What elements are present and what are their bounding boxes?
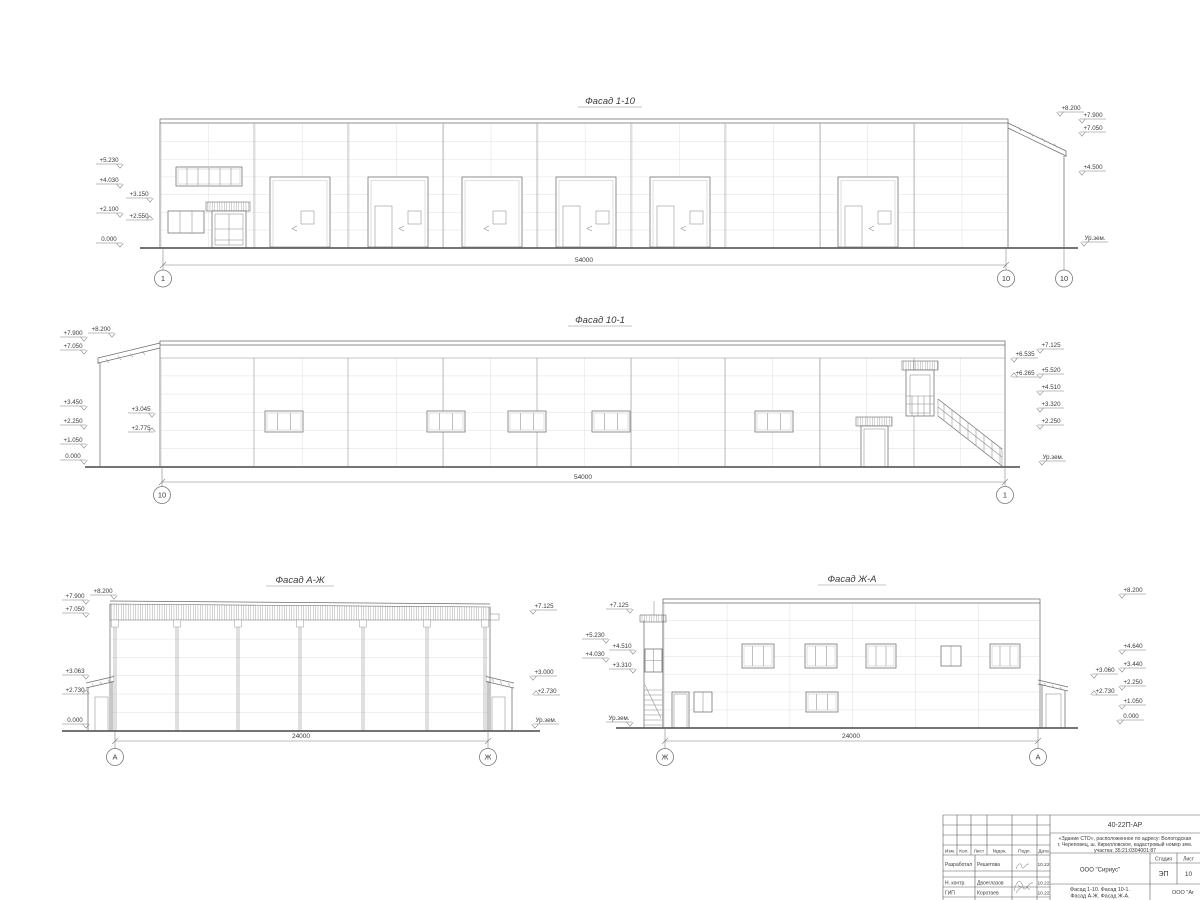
elevation-mark: +1.050	[1119, 698, 1146, 709]
stage-header: Стадия	[1155, 857, 1172, 863]
elevation-mark: 0.000	[1117, 713, 1144, 724]
elevation-value: Ур.зем.	[609, 715, 630, 722]
gate[interactable]	[838, 177, 898, 247]
project-description: участка: 35:21:0304001:87	[1094, 848, 1156, 854]
side-canopy	[98, 343, 160, 466]
window	[508, 411, 546, 432]
drawing-sheet: Фасад 1-10	[0, 0, 1200, 900]
axis-bubble: 1	[155, 270, 172, 287]
org-name: ООО "Сириус"	[1080, 868, 1120, 874]
facade-title: Фасад А-Ж	[276, 575, 326, 586]
axis-label: А	[1035, 753, 1040, 762]
elevation-mark: 0.000	[62, 717, 89, 728]
signature	[1016, 864, 1029, 869]
elevation-value: Ур.зем.	[1043, 454, 1064, 461]
dimension: 24000	[662, 728, 1041, 749]
elevation-value: +3.060	[1095, 667, 1115, 674]
elevation-value: +7.050	[63, 343, 83, 350]
sheet-number: 10	[1185, 871, 1193, 878]
elevation-value: +2.250	[1123, 679, 1143, 686]
elevation-mark: +3.150	[126, 191, 153, 202]
elevation-value: 0.000	[1123, 713, 1139, 720]
elevation-value: +2.250	[1041, 418, 1061, 425]
elevation-value: +2.730	[537, 688, 557, 695]
axis-bubble: А	[1030, 749, 1047, 766]
dimension-value: 24000	[292, 733, 310, 740]
dimension-value: 54000	[574, 474, 592, 481]
elevation-value: Ур.зем.	[536, 717, 557, 724]
elevation-value: +2.550	[129, 213, 149, 220]
facade-10-1: Фасад 10-1 +7.900 +7.050 +8.20	[60, 315, 1066, 504]
elevation-value: +5.230	[585, 632, 605, 639]
role-label: Разработал	[945, 862, 972, 868]
elevation-value: +7.125	[609, 602, 629, 609]
elevation-mark: +4.500	[1079, 164, 1106, 175]
axis-label: 1	[1003, 491, 1007, 500]
entrance-canopy	[206, 202, 250, 211]
ground-level-mark: Ур.зем.	[1081, 235, 1108, 246]
elevation-value: +7.125	[1041, 342, 1061, 349]
elevation-value: +2.100	[99, 206, 119, 213]
dimension-value: 54000	[575, 257, 593, 264]
facade-a-zh: Фасад А-Ж +7.900 +7.050 +8.200 +3.063 +2…	[62, 575, 560, 766]
elevation-mark: +7.125	[606, 602, 633, 613]
elevation-value: +6.535	[1015, 351, 1035, 358]
doc-number: 40-22П-АР	[1108, 822, 1143, 829]
axis-bubble: Ж	[480, 749, 497, 766]
elevation-value: 0.000	[65, 453, 81, 460]
dimension-value: 24000	[842, 733, 860, 740]
window	[168, 211, 204, 233]
window	[427, 411, 465, 432]
elevation-mark: +3.000	[530, 669, 557, 680]
elevation-mark: +7.125	[530, 603, 557, 614]
elevation-value: +2.730	[65, 687, 85, 694]
rev-header: Лист	[974, 849, 985, 855]
door-canopy	[856, 417, 892, 426]
elevation-mark: +1.050	[60, 437, 87, 448]
facade-title: Фасад Ж-А	[828, 574, 877, 585]
elevation-value: +3.000	[534, 669, 554, 676]
panel-grid	[111, 621, 489, 731]
elevation-value: +3.450	[63, 399, 83, 406]
elevation-value: +3.440	[1123, 661, 1143, 668]
axis-bubble: 1	[997, 487, 1014, 504]
rev-header: Кол.	[959, 849, 969, 855]
stair-canopy	[640, 615, 666, 622]
elevation-value: +3.063	[65, 668, 85, 675]
elevation-mark: +3.310	[609, 662, 636, 673]
elevation-mark: +8.200	[1057, 105, 1084, 116]
porch-door[interactable]	[492, 697, 505, 731]
dimension: 54000	[160, 248, 1064, 270]
gate[interactable]	[270, 177, 330, 247]
elevation-mark: +2.775	[128, 425, 155, 432]
elevation-value: +8.200	[93, 588, 113, 595]
elevation-value: +7.900	[63, 330, 83, 337]
upper-door-canopy	[902, 361, 938, 370]
axis-label: 10	[158, 491, 166, 500]
project-description: г. Череповец, ш. Кирилловское, кадастров…	[1058, 841, 1192, 848]
elevation-mark: 0.000	[60, 453, 87, 464]
elevation-value: 0.000	[101, 236, 117, 243]
elevation-mark: +4.030	[96, 177, 123, 188]
porch-door[interactable]	[1046, 694, 1061, 728]
rev-header: Изм.	[945, 849, 955, 855]
elevation-value: +4.640	[1123, 643, 1143, 650]
elevation-value: +5.520	[1041, 367, 1061, 374]
elevation-value: +7.900	[1083, 112, 1103, 119]
window	[990, 644, 1020, 668]
panel-grid	[664, 603, 1039, 728]
elevation-value: +4.030	[99, 177, 119, 184]
elevation-mark: +8.200	[90, 588, 117, 599]
elevation-value: +4.030	[585, 651, 605, 658]
sheet-title: Фасад 1-10. Фасад 10-1.	[1070, 887, 1130, 893]
elevation-value: 0.000	[67, 717, 83, 724]
axis-label: 10	[1002, 274, 1010, 283]
elevation-mark: +2.250	[1037, 418, 1064, 429]
rev-header: Подп.	[1018, 849, 1031, 855]
elevation-mark: +4.640	[1119, 643, 1146, 654]
elevation-mark: +7.125	[1037, 342, 1064, 353]
title-block: 40-22П-АР «Здание СТО», расположенное по…	[943, 815, 1200, 900]
elevation-mark: +4.510	[1037, 384, 1064, 395]
side-porch	[1038, 680, 1068, 728]
sheet-header: Лист	[1183, 857, 1195, 863]
elevation-mark: +5.230	[582, 632, 609, 643]
elevation-mark: +7.900	[60, 330, 87, 341]
elevation-mark: +2.250	[1119, 679, 1146, 690]
fascia-band	[110, 604, 490, 620]
axis-label: Ж	[662, 753, 669, 762]
elevation-mark: +3.320	[1037, 401, 1064, 412]
window	[806, 692, 838, 712]
elevation-mark: +2.100	[96, 206, 123, 217]
elevation-mark: +2.250	[60, 418, 87, 429]
elevation-mark: +2.550	[126, 213, 153, 220]
ground-level-mark: Ур.зем.	[1039, 454, 1066, 465]
axis-bubble: 10	[998, 270, 1015, 287]
ground-level-mark: Ур.зем.	[532, 717, 559, 728]
facade-zh-a: Фасад Ж-А +7.125 +5.230 +4.510 +4.030 +3…	[582, 574, 1146, 766]
elevation-mark: +7.050	[1079, 125, 1106, 136]
gate[interactable]	[556, 177, 616, 247]
elevation-value: +4.510	[612, 643, 632, 650]
window	[592, 411, 630, 432]
org-name-2: ООО "Аг	[1172, 890, 1194, 896]
date-value: 10.22	[1037, 862, 1049, 868]
person-name: Двоеглазов	[977, 881, 1004, 887]
elevation-mark: +3.060	[1091, 667, 1118, 678]
elevation-value: +7.050	[65, 606, 85, 613]
axis-label: А	[112, 753, 117, 762]
rev-header: Дата	[1038, 849, 1049, 855]
axis-bubble: 10	[1056, 270, 1073, 287]
elevation-value: +3.045	[131, 406, 151, 413]
elevation-value: +3.150	[129, 191, 149, 198]
window	[742, 644, 774, 668]
elevation-mark: +8.200	[88, 326, 115, 337]
rev-header: №док.	[992, 849, 1006, 855]
window	[755, 411, 793, 432]
elevation-value: +8.200	[91, 326, 111, 333]
facade-1-10: Фасад 1-10	[96, 96, 1108, 287]
dimension: 54000	[159, 467, 1008, 487]
elevation-mark: +7.050	[62, 606, 89, 617]
elevation-mark: +7.900	[1079, 112, 1106, 123]
axis-bubble: А	[107, 749, 124, 766]
elevation-value: +8.200	[1061, 105, 1081, 112]
dimension: 24000	[112, 731, 491, 749]
elevation-mark: +5.230	[96, 157, 123, 168]
elevation-mark: +3.440	[1119, 661, 1146, 672]
axis-label: 10	[1060, 274, 1068, 283]
elevation-mark: +3.063	[62, 668, 89, 679]
axis-label: 1	[161, 274, 165, 283]
date-value: 10.22	[1037, 881, 1049, 887]
elevation-mark: +4.030	[582, 651, 609, 662]
door[interactable]	[861, 426, 888, 467]
elevation-value: +1.050	[63, 437, 83, 444]
elevation-value: +7.050	[1083, 125, 1103, 132]
elevation-value: Ур.зем.	[1085, 235, 1106, 242]
facade-title: Фасад 10-1	[575, 315, 625, 326]
elevation-value: +7.125	[534, 603, 554, 610]
elevation-mark: +4.510	[609, 643, 636, 654]
elevation-value: +4.500	[1083, 164, 1103, 171]
gate[interactable]	[368, 177, 428, 247]
elevation-value: +6.265	[1015, 370, 1035, 377]
elevation-mark: +3.045	[128, 406, 155, 417]
gate[interactable]	[462, 177, 522, 247]
elevation-mark: +7.900	[62, 593, 89, 604]
elevation-mark: 0.000	[96, 236, 123, 247]
role-label: ГИП	[945, 891, 955, 897]
window	[866, 644, 896, 668]
elevation-value: +2.730	[1095, 688, 1115, 695]
elevation-value: +3.310	[612, 662, 632, 669]
window	[265, 411, 303, 432]
ground-level-mark: Ур.зем.	[606, 715, 633, 726]
elevation-mark: +5.520	[1037, 367, 1064, 378]
stair-tower	[640, 601, 666, 728]
elevation-mark: +3.450	[60, 399, 87, 410]
person-name: Коротаев	[977, 891, 999, 897]
elevation-value: +3.320	[1041, 401, 1061, 408]
elevation-value: +4.510	[1041, 384, 1061, 391]
facade-title: Фасад 1-10	[585, 96, 635, 107]
elevation-value: +2.775	[131, 425, 151, 432]
stage-value: ЭП	[1158, 871, 1168, 878]
elevation-mark: +8.200	[1119, 587, 1146, 598]
elevation-value: +8.200	[1123, 587, 1143, 594]
axis-bubble: Ж	[657, 749, 674, 766]
elevation-mark: +6.535	[1011, 351, 1038, 362]
date-value: 10.22	[1037, 891, 1049, 897]
axis-label: Ж	[485, 753, 492, 762]
person-name: Решетова	[977, 862, 1000, 868]
elevation-mark: +6.265	[1011, 370, 1038, 377]
elevation-value: +2.250	[63, 418, 83, 425]
window	[805, 644, 837, 668]
elevation-value: +5.230	[99, 157, 119, 164]
elevation-mark: +2.730	[62, 687, 89, 694]
elevation-mark: +2.730	[1091, 688, 1118, 695]
porch-door[interactable]	[95, 697, 108, 731]
axis-bubble: 10	[154, 487, 171, 504]
gate[interactable]	[650, 177, 710, 247]
elevation-mark: +7.050	[60, 343, 87, 354]
side-canopy	[1008, 123, 1066, 248]
elevation-value: +7.900	[65, 593, 85, 600]
role-label: Н. контр.	[945, 881, 966, 887]
elevation-mark: +2.730	[533, 688, 560, 695]
door[interactable]	[672, 692, 689, 728]
facades-drawing: Фасад 1-10	[0, 0, 1200, 900]
elevation-value: +1.050	[1123, 698, 1143, 705]
sheet-title: Фасад А-Ж. Фасад Ж-А.	[1070, 894, 1129, 900]
